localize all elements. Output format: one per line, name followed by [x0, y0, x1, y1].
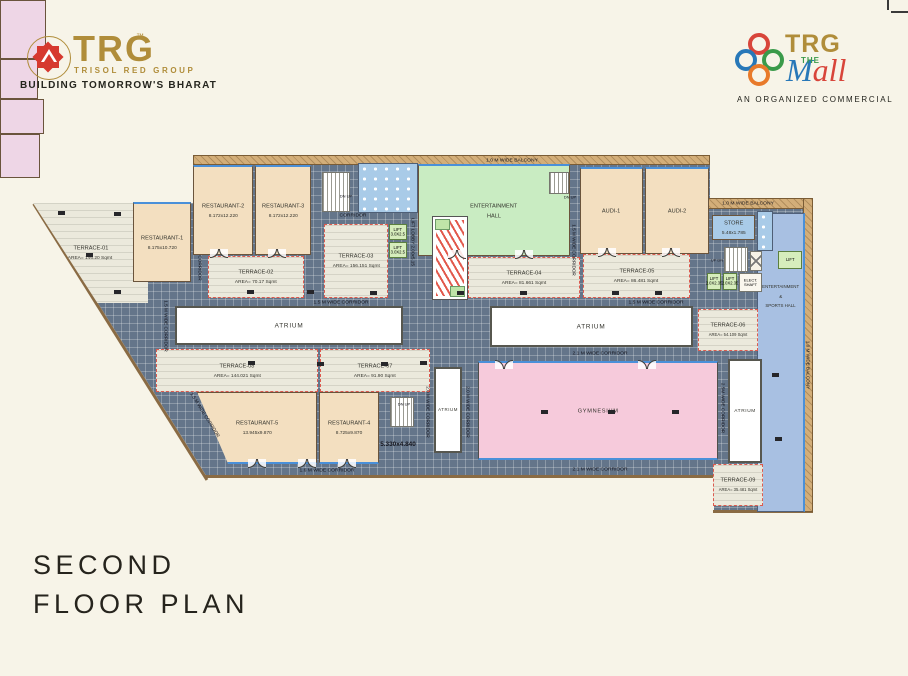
outer-wall-bottom	[205, 475, 715, 478]
column	[541, 410, 548, 414]
column	[248, 361, 255, 365]
trademark-mark: ™	[136, 32, 144, 41]
column	[457, 291, 464, 295]
corridor-20-vertical-2: 2.0 M WIDE CORRIDOR	[465, 386, 470, 438]
door	[598, 248, 616, 257]
column	[114, 290, 121, 294]
dimension-note: 5.330x4.840	[380, 440, 416, 447]
column	[672, 410, 679, 414]
corridor-25-vertical: 2.5M WIDE CORRIDOR	[720, 383, 725, 433]
mall-logo-the: THE	[801, 56, 820, 65]
lift-lobby-label: LIFT LOBBY 2.00x5.15	[410, 218, 415, 266]
page-title-line2: FLOOR PLAN	[33, 585, 249, 624]
column	[307, 290, 314, 294]
room-gymnasium: GYMNESIUM	[478, 361, 718, 460]
corridor-20-vertical-1: 2.0 M WIDE CORRIDOR	[425, 386, 430, 438]
column	[655, 291, 662, 295]
mall-ring-orange-icon	[748, 64, 770, 86]
toilet-block-right	[757, 211, 773, 251]
stair-4-label: DN UP	[398, 402, 410, 407]
door	[210, 249, 228, 258]
column	[317, 362, 324, 366]
door	[495, 360, 513, 369]
lift-sports-hall: LIFT	[778, 251, 802, 269]
room-restaurant-4: RESTAURANT-4 8.725x9.870	[319, 392, 379, 464]
toilet-block-top	[358, 163, 418, 213]
mall-logo-tagline: AN ORGANIZED COMMERCIAL	[737, 95, 893, 104]
corridor-21-label-bottom: 2.1 M WIDE CORRIDOR	[572, 466, 627, 472]
lift-shaft	[750, 251, 762, 271]
column	[247, 290, 254, 294]
corner-mark	[887, 0, 889, 10]
atrium-right: ATRIUM	[490, 306, 693, 347]
lift-right-2: LIFT 2.0X2.35	[723, 273, 737, 290]
column	[86, 253, 93, 257]
room-restaurant-2: RESTAURANT-2 8.172x12.220	[193, 165, 253, 255]
terrace-05-area: TERRACE-05 AREA= 86.481 Sqmt	[583, 254, 690, 298]
corridor-21-label-top: 2.1 M WIDE CORRIDOR	[572, 350, 627, 356]
column	[608, 410, 615, 414]
atrium-center: ATRIUM	[434, 367, 462, 453]
column	[772, 373, 779, 377]
balcony-top-right-label: 1.0 M WIDE BALCONY	[722, 200, 774, 206]
column	[612, 291, 619, 295]
door	[662, 248, 680, 257]
corridor-label: CORRIDOR	[339, 212, 366, 218]
trg-logo-subtitle: TRISOL RED GROUP	[74, 66, 195, 75]
room-restaurant-1: RESTAURANT-1 8.175x10.720	[133, 202, 191, 282]
staircase-4	[0, 134, 40, 178]
corridor-vertical-label: CORRIDOR	[197, 255, 202, 280]
lift-center-2: LIFT 3.0X2.5	[389, 242, 407, 258]
balcony-top-label: 1.0 M WIDE BALCONY	[486, 157, 538, 163]
floor-plan-page: TRG ™ TRISOL RED GROUP BUILDING TOMORROW…	[0, 0, 908, 676]
terrace-03-area: TERRACE-03 AREA= 156.151 Sqmt	[324, 224, 388, 298]
door	[448, 250, 466, 259]
terrace-06-area: TERRACE-06 AREA= 54.109 Sqmt	[698, 309, 758, 351]
terrace-02-area: TERRACE-02 AREA= 70.17 Sqmt	[208, 256, 304, 298]
corridor-16-label: 1.6 M WIDE CORRIDOR	[299, 467, 354, 473]
door	[638, 360, 656, 369]
lift-center-1: LIFT 3.0X2.5	[389, 224, 407, 240]
corridor-15-vertical-audi: 1.5 M WIDE CORRIDOR	[571, 224, 576, 276]
room-store: STORE 5.48x1.785	[712, 215, 755, 240]
column	[114, 212, 121, 216]
trg-logo-tagline: BUILDING TOMORROW'S BHARAT	[20, 80, 217, 91]
balcony-right-label: 1.0 M WIDE BALCONY	[805, 341, 810, 389]
stair-3-label: UP DN	[711, 258, 723, 263]
staircase-3	[0, 99, 44, 134]
page-title: SECOND FLOOR PLAN	[33, 546, 249, 624]
door	[268, 249, 286, 258]
electrical-shaft: ELECT. SHAFT	[739, 273, 762, 292]
atrium-far-right: ATRIUM	[728, 359, 762, 463]
terrace-07-area: TERRACE-07 AREA= 91.90 Sqmt	[320, 349, 430, 392]
column	[775, 437, 782, 441]
column	[58, 211, 65, 215]
room-restaurant-3: RESTAURANT-3 8.172x12.220	[255, 165, 311, 255]
terrace-09-area: TERRACE-09 AREA= 35.481 Sqmt	[713, 464, 763, 506]
column	[381, 362, 388, 366]
column	[520, 291, 527, 295]
trg-logo-emblem	[27, 36, 71, 80]
lift-right-1: LIFT 2.0X2.35	[707, 273, 721, 290]
corridor-15-label-right: 1.5 M WIDE CORRIDOR	[628, 299, 683, 305]
door	[248, 459, 266, 468]
corridor-15-vertical-left: 1.5 M WIDE CORRIDOR	[163, 300, 168, 352]
terrace-08-area: TERRACE-08 AREA= 144.021 Sqmt	[156, 349, 318, 392]
room-audi-2: AUDI-2	[645, 167, 709, 254]
column	[420, 361, 427, 365]
column	[370, 291, 377, 295]
page-title-line1: SECOND	[33, 546, 249, 585]
room-audi-1: AUDI-1	[580, 167, 643, 254]
door	[515, 250, 533, 259]
atrium-left: ATRIUM	[175, 306, 403, 345]
stair-1-label: DN UP	[340, 194, 352, 199]
stair-2-label: DN UP	[564, 195, 576, 200]
corridor-15-label-left: 1.5 M WIDE CORRIDOR	[313, 299, 368, 305]
